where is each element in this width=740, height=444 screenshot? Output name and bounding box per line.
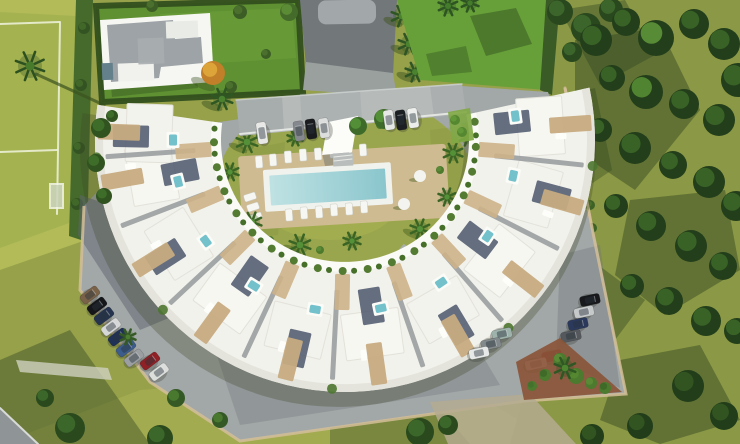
- rim-planting: [460, 191, 468, 199]
- pergola: [478, 142, 515, 159]
- tree-highlight: [72, 199, 79, 206]
- sun-lounger: [300, 207, 308, 219]
- rim-planting: [471, 158, 477, 164]
- tree-highlight: [622, 275, 636, 289]
- outer-planting: [588, 161, 598, 171]
- woods-tree: [691, 306, 721, 336]
- tree-highlight: [710, 30, 729, 49]
- palm-crown: [126, 335, 131, 340]
- rim-planting: [339, 267, 347, 275]
- field-goal: [50, 184, 63, 208]
- plot-bush: [225, 81, 237, 93]
- tree-highlight: [582, 26, 601, 45]
- tree-highlight: [234, 6, 242, 14]
- tree-highlight: [629, 415, 645, 431]
- rim-planting: [364, 265, 372, 273]
- rim-planting: [248, 229, 256, 237]
- rim-planting: [290, 257, 298, 265]
- palm-crown: [349, 238, 354, 243]
- rim-planting: [268, 245, 276, 253]
- tree-highlight: [262, 50, 268, 56]
- outer-planting: [158, 305, 168, 315]
- driveway-pad: [318, 0, 376, 25]
- rim-planting: [388, 258, 396, 266]
- tree-highlight: [213, 413, 223, 423]
- corner-tree: [562, 42, 582, 62]
- palm-crown: [219, 96, 226, 103]
- rim-planting: [421, 242, 427, 248]
- villa-roof-step: [118, 62, 155, 81]
- orange-tree: [201, 61, 225, 85]
- rim-planting: [399, 255, 405, 261]
- woods-tree: [580, 24, 612, 56]
- rim-planting: [468, 168, 476, 176]
- tree-highlight: [226, 82, 233, 89]
- bed-plant: [527, 381, 537, 391]
- woods-tree: [620, 274, 644, 298]
- south-tree: [36, 389, 54, 407]
- rim-planting: [439, 225, 445, 231]
- palm-crown: [450, 150, 456, 156]
- rim-planting: [226, 199, 232, 205]
- tree-highlight: [440, 416, 452, 428]
- sun-lounger: [269, 154, 277, 166]
- villa-roof-step: [166, 20, 199, 38]
- rim-planting: [351, 268, 357, 274]
- tree-highlight: [606, 195, 620, 209]
- sun-lounger: [314, 148, 322, 160]
- southeast-tree: [672, 370, 704, 402]
- tree-highlight: [677, 232, 696, 251]
- tree-highlight: [671, 91, 689, 109]
- sun-lounger: [255, 156, 263, 168]
- tree-highlight: [695, 168, 714, 187]
- woods-tree: [693, 166, 725, 198]
- rim-planting: [220, 187, 228, 195]
- plot-bush: [233, 5, 247, 19]
- lawn-northeast: [397, 0, 553, 90]
- tree-highlight: [88, 155, 99, 166]
- rim-planting: [447, 213, 455, 221]
- tree-highlight: [711, 254, 728, 271]
- tree-highlight: [281, 4, 292, 15]
- woods-tree: [629, 75, 663, 109]
- rim-planting: [279, 252, 285, 258]
- pergola: [334, 274, 350, 310]
- woods-tree: [709, 252, 737, 280]
- pergola: [549, 115, 592, 134]
- tree-highlight: [107, 111, 114, 118]
- woods-tree: [703, 104, 735, 136]
- bed-plant: [539, 369, 551, 381]
- palm-crown: [26, 62, 35, 71]
- southeast-tree: [627, 413, 653, 439]
- planter-shrub: [450, 115, 460, 125]
- sun-lounger: [284, 151, 292, 163]
- roof-lounger: [555, 133, 566, 139]
- tree-highlight: [76, 80, 83, 87]
- rim-planting: [210, 138, 218, 146]
- white-parasol: [398, 198, 410, 210]
- rim-planting: [213, 163, 221, 171]
- woods-tree: [604, 194, 628, 218]
- rim-planting: [454, 205, 460, 211]
- woods-tree: [636, 211, 666, 241]
- roof-lounger: [360, 349, 367, 360]
- tree-highlight: [601, 0, 615, 14]
- tree-highlight: [564, 43, 576, 55]
- west-edge-tree: [96, 188, 112, 204]
- tree-highlight: [37, 390, 48, 401]
- woods-tree: [599, 65, 625, 91]
- tree-highlight: [681, 11, 699, 29]
- tree-highlight: [458, 128, 464, 134]
- woods-tree: [679, 9, 709, 39]
- sun-lounger: [359, 144, 367, 156]
- tree-highlight: [632, 77, 652, 97]
- bed-plant: [599, 382, 611, 394]
- rim-planting: [217, 175, 223, 181]
- woods-tree: [638, 20, 674, 56]
- rim-planting: [212, 126, 218, 132]
- tree-highlight: [641, 22, 663, 44]
- tree-highlight: [661, 153, 678, 170]
- rim-planting: [232, 209, 240, 217]
- tree-highlight: [549, 1, 565, 17]
- south-tree: [55, 413, 85, 443]
- palm-crown: [417, 226, 423, 232]
- west-edge-tree: [106, 110, 118, 122]
- rim-planting: [473, 132, 479, 138]
- rim-planting: [465, 182, 471, 188]
- plot-bush: [261, 49, 271, 59]
- woods-tree: [612, 8, 640, 36]
- tree-highlight: [149, 427, 165, 443]
- outer-planting: [327, 384, 337, 394]
- rim-planting: [212, 151, 218, 157]
- tree-highlight: [57, 415, 75, 433]
- rim-planting: [410, 247, 418, 255]
- woods-tree: [669, 89, 699, 119]
- tree-highlight: [586, 378, 593, 385]
- tree-highlight: [437, 166, 442, 171]
- corner-tree: [547, 0, 573, 25]
- tree-highlight: [97, 189, 107, 199]
- sun-lounger: [330, 204, 338, 216]
- white-parasol: [414, 170, 426, 182]
- tree-highlight: [614, 10, 631, 27]
- tree-highlight: [528, 382, 534, 388]
- aerial-render: [0, 0, 740, 444]
- sun-lounger: [345, 203, 353, 215]
- tree-highlight: [657, 289, 674, 306]
- palm-crown: [562, 365, 569, 372]
- rim-planting: [376, 264, 382, 270]
- tree-highlight: [638, 213, 656, 231]
- tree-highlight: [317, 246, 322, 251]
- courtyard-shrub: [436, 166, 444, 174]
- south-tree: [438, 415, 458, 435]
- woods-tree: [659, 151, 687, 179]
- tree-highlight: [93, 119, 105, 131]
- plunge-pool: [511, 110, 520, 122]
- sun-lounger: [285, 209, 293, 221]
- field-hedge-bush: [78, 22, 90, 34]
- palm-crown: [445, 3, 451, 9]
- field-hedge-bush: [75, 79, 87, 91]
- tree-highlight: [600, 383, 607, 390]
- villa-roof-step: [138, 38, 165, 65]
- tree-highlight: [350, 118, 361, 129]
- strip-planter: [448, 108, 474, 144]
- palm-crown: [244, 139, 251, 146]
- rim-planting: [472, 143, 480, 151]
- tree-highlight: [601, 67, 617, 83]
- woods-tree: [675, 230, 707, 262]
- tree-highlight: [203, 62, 217, 76]
- plot-tree: [280, 3, 298, 21]
- woods-tree: [655, 287, 683, 315]
- strip-tree: [349, 117, 367, 135]
- tree-highlight: [712, 404, 729, 421]
- woods-tree: [619, 132, 651, 164]
- palm-crown: [227, 169, 232, 174]
- rim-planting: [314, 264, 322, 272]
- rim-planting: [326, 267, 332, 273]
- bed-plant: [585, 377, 597, 389]
- tree-highlight: [79, 23, 86, 30]
- tree-highlight: [451, 116, 457, 122]
- parking-tree: [167, 389, 185, 407]
- tree-highlight: [540, 370, 547, 377]
- tree-highlight: [674, 372, 693, 391]
- viewport: [0, 0, 740, 444]
- tree-highlight: [705, 106, 724, 125]
- parking-tree: [212, 412, 228, 428]
- rim-planting: [302, 262, 308, 268]
- sports-field-turf: [0, 12, 76, 248]
- tree-highlight: [621, 134, 640, 153]
- tree-highlight: [408, 420, 425, 437]
- woods-tree: [708, 28, 740, 60]
- plunge-pool: [169, 135, 177, 146]
- sun-lounger: [299, 149, 307, 161]
- rim-planting: [240, 219, 246, 225]
- rim-planting: [430, 232, 438, 240]
- tree-highlight: [693, 308, 711, 326]
- west-edge-tree: [87, 154, 105, 172]
- southeast-tree: [710, 402, 738, 430]
- palm-crown: [297, 242, 304, 249]
- planter-shrub: [457, 127, 467, 137]
- tree-highlight: [168, 390, 179, 401]
- rim-planting: [258, 237, 264, 243]
- tree-highlight: [582, 425, 596, 439]
- west-edge-tree: [91, 118, 111, 138]
- sun-lounger: [360, 201, 368, 213]
- pergola: [175, 142, 212, 159]
- sun-lounger: [315, 206, 323, 218]
- courtyard-shrub: [316, 246, 324, 254]
- palm-crown: [444, 194, 449, 199]
- tree-highlight: [147, 1, 154, 8]
- palm-crown: [467, 0, 472, 5]
- plot-bush: [146, 0, 158, 12]
- villa-pool-glass: [102, 63, 114, 80]
